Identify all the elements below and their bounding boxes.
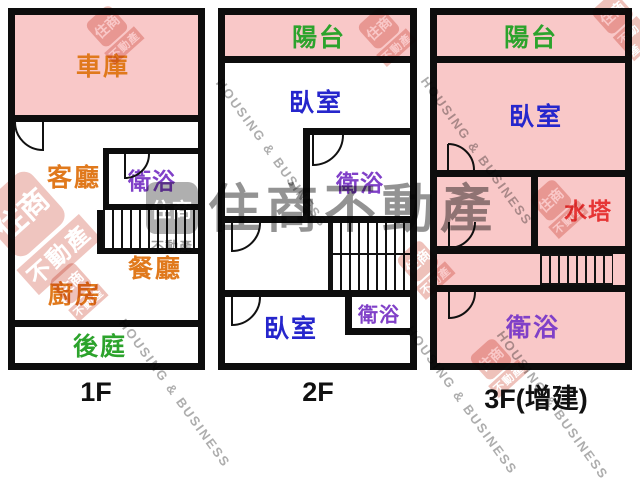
room-label-bathroom-3f: 衛浴	[506, 308, 560, 344]
floorplan-2f: 陽台 臥室 衛浴 衛浴 臥室	[218, 8, 417, 370]
room-label-bedroom-lower-2f: 臥室	[264, 309, 318, 345]
floorplan-3f: 陽台 臥室 水塔 衛浴	[430, 8, 632, 370]
staircase-2f	[328, 223, 410, 290]
staircase-1f	[97, 210, 198, 254]
storage-room-3f	[437, 177, 531, 246]
room-label-bedroom-3f: 臥室	[509, 97, 563, 133]
room-label-living: 客廳	[47, 158, 101, 194]
room-label-bathroom-small-2f: 衛浴	[358, 299, 400, 328]
floorplan-1f: 車庫 客廳 衛浴 餐廳 廚房 後庭	[8, 8, 205, 370]
room-label-garage: 車庫	[76, 47, 130, 83]
floor-caption-3f: 3F(增建)	[484, 377, 588, 416]
floor-caption-1f: 1F	[80, 377, 112, 408]
staircase-3f	[540, 254, 613, 285]
floor-caption-2f: 2F	[302, 377, 334, 408]
room-label-dining: 餐廳	[128, 249, 182, 285]
room-label-kitchen: 廚房	[48, 275, 102, 311]
room-label-water-tank-3f: 水塔	[564, 192, 612, 226]
room-label-bathroom-1f: 衛浴	[128, 162, 176, 196]
room-label-balcony-2f: 陽台	[292, 18, 346, 54]
room-label-bathroom-mid-2f: 衛浴	[336, 164, 384, 198]
room-label-balcony-3f: 陽台	[504, 18, 558, 54]
room-label-backyard: 後庭	[73, 327, 127, 363]
room-label-bedroom-upper-2f: 臥室	[289, 83, 343, 119]
floorplan-image: { "floors": [ { "label": "1F", "rooms": …	[0, 0, 640, 412]
